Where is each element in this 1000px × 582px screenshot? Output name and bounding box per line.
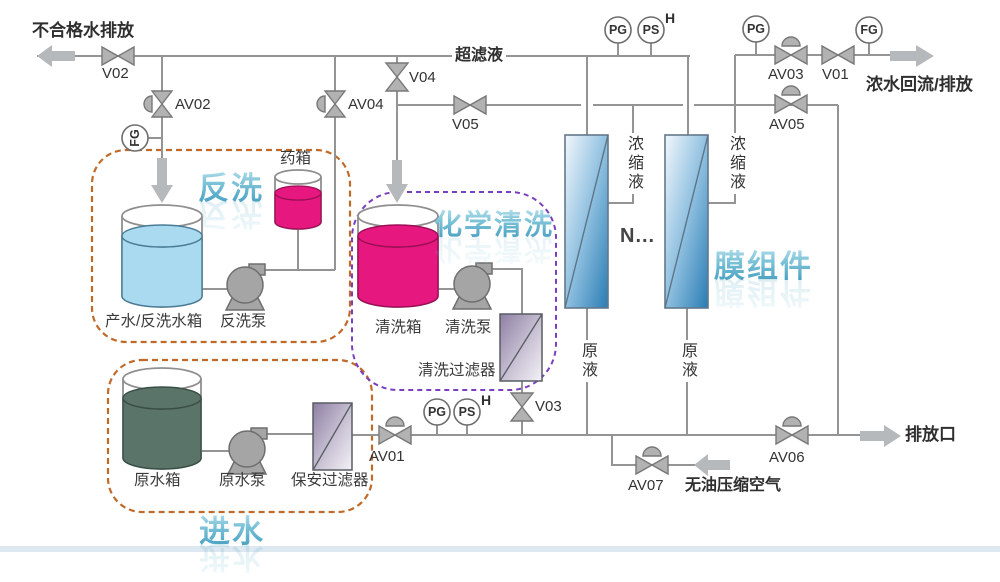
product-backwash-tank-label: 产水/反洗水箱 bbox=[105, 313, 202, 330]
raw-water-pump bbox=[228, 428, 267, 474]
security-filter bbox=[313, 403, 352, 470]
concentrate-return-arrow bbox=[890, 45, 934, 67]
valve-av07 bbox=[636, 447, 668, 474]
cleaning-filter-label: 清洗过滤器 bbox=[418, 362, 496, 379]
fg-left-text: FG bbox=[122, 125, 148, 151]
av04-tag: AV04 bbox=[348, 97, 384, 112]
raw-water-tank-label: 原水箱 bbox=[134, 472, 181, 489]
cleaning-pump-label: 清洗泵 bbox=[445, 319, 492, 336]
membrane-module-2 bbox=[665, 135, 708, 308]
valve-av02 bbox=[144, 91, 172, 117]
valve-v01 bbox=[822, 46, 854, 64]
concentrate-label-1: 浓缩液 bbox=[623, 133, 643, 194]
diagram-canvas bbox=[0, 0, 1000, 552]
v05-tag: V05 bbox=[452, 117, 479, 132]
av02-tag: AV02 bbox=[175, 97, 211, 112]
med-tank bbox=[275, 170, 321, 229]
membrane-title-reflection: 膜组件 bbox=[714, 272, 813, 317]
ps-bottom-high-flag: H bbox=[481, 393, 491, 407]
permeate-drop-pipes bbox=[587, 56, 688, 135]
feed-label-1: 原液 bbox=[577, 340, 597, 382]
cleaning-tank-inlet-arrow bbox=[386, 160, 408, 203]
av01-tag: AV01 bbox=[369, 449, 405, 464]
backwash-pump bbox=[226, 264, 265, 310]
pg-top1-text: PG bbox=[605, 22, 631, 38]
ps-bottom-text: PS bbox=[454, 404, 480, 420]
raw-water-tank bbox=[123, 368, 201, 469]
valve-av06 bbox=[776, 417, 808, 444]
valve-v05 bbox=[454, 96, 486, 114]
unqualified-water-arrow bbox=[37, 45, 75, 67]
cleaning-title-reflection: 化学清洗 bbox=[434, 231, 554, 271]
raw-water-pump-label: 原水泵 bbox=[219, 472, 266, 489]
v01-tag: V01 bbox=[822, 67, 849, 82]
valve-v04 bbox=[386, 63, 408, 91]
valve-av03 bbox=[775, 37, 807, 64]
concentrate-label-2: 浓缩液 bbox=[725, 133, 745, 194]
valve-v03 bbox=[511, 393, 533, 421]
ps-top-text: PS bbox=[638, 22, 664, 38]
compressed-air-label: 无油压缩空气 bbox=[685, 477, 781, 495]
membrane-count-label: N... bbox=[620, 225, 655, 248]
unqualified-water-label: 不合格水排放 bbox=[32, 22, 134, 41]
cleaning-tank-label: 清洗箱 bbox=[375, 319, 422, 336]
compressed-air-arrow bbox=[694, 454, 730, 476]
feed-label-2: 原液 bbox=[677, 340, 697, 382]
filters bbox=[313, 314, 542, 470]
ps-top-high-flag: H bbox=[665, 11, 675, 25]
drain-outlet-label: 排放口 bbox=[905, 426, 956, 445]
ultrafiltrate-label: 超滤液 bbox=[452, 47, 506, 65]
av05-tag: AV05 bbox=[769, 117, 805, 132]
v04-tag: V04 bbox=[409, 70, 436, 85]
feed-main-pipe bbox=[201, 434, 862, 451]
med-tank-label: 药箱 bbox=[280, 150, 311, 167]
valve-av05 bbox=[775, 86, 807, 113]
v03-tag: V03 bbox=[535, 399, 562, 414]
valve-av01 bbox=[379, 417, 411, 444]
pg-bottom-text: PG bbox=[424, 404, 450, 420]
backwash-pump-label: 反洗泵 bbox=[220, 313, 267, 330]
av06-tag: AV06 bbox=[769, 450, 805, 465]
cleaning-tank bbox=[358, 205, 438, 307]
membrane-module-1 bbox=[565, 135, 608, 308]
membrane-feed-risers bbox=[587, 308, 687, 435]
av07-tag: AV07 bbox=[628, 478, 664, 493]
fg-top-text: FG bbox=[856, 22, 882, 38]
inlet-title-reflection: 进水 bbox=[199, 537, 265, 582]
security-filter-label: 保安过滤器 bbox=[291, 472, 369, 489]
pg-top2-text: PG bbox=[743, 21, 769, 37]
process-flow-diagram: 不合格水排放 超滤液 浓水回流/排放 排放口 无油压缩空气 反洗 反洗 化学清洗… bbox=[0, 0, 1000, 552]
v02-tag: V02 bbox=[102, 66, 129, 81]
valve-av04 bbox=[317, 91, 345, 117]
concentrate-return-label: 浓水回流/排放 bbox=[866, 76, 973, 95]
backwash-tank-inlet-arrow bbox=[151, 158, 173, 203]
bottom-strip bbox=[0, 546, 1000, 552]
backwash-title-reflection: 反洗 bbox=[198, 194, 264, 239]
drain-outlet-arrow bbox=[860, 425, 901, 447]
valve-v02 bbox=[102, 47, 134, 65]
product-backwash-tank bbox=[122, 205, 202, 307]
av03-tag: AV03 bbox=[768, 67, 804, 82]
cleaning-filter bbox=[500, 314, 542, 381]
